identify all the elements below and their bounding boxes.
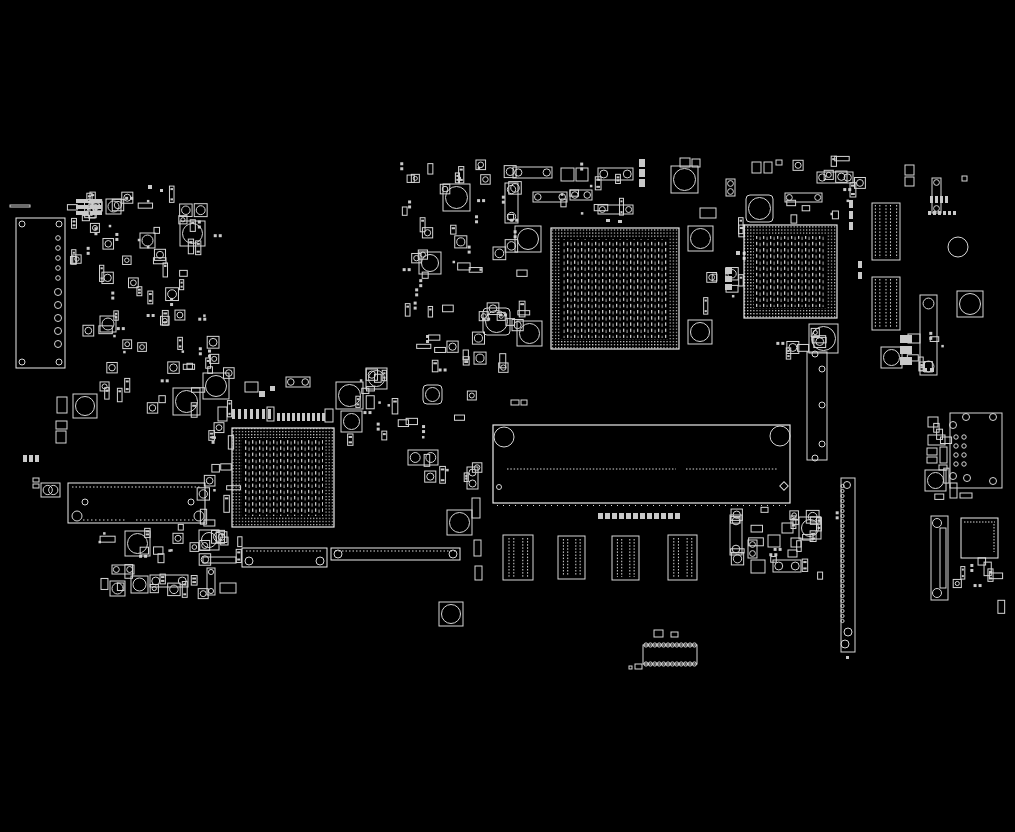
smd-part — [561, 168, 574, 181]
smd-dot — [203, 314, 206, 317]
smd-part-mark — [803, 561, 806, 563]
smd-pad-circle — [469, 393, 474, 398]
smd-part-mark — [181, 282, 183, 284]
smd-dot — [618, 220, 622, 223]
smd-pad-circle — [955, 581, 959, 585]
smd-dot — [830, 213, 833, 216]
ffc-connector — [558, 536, 585, 579]
smd-part-mark — [170, 188, 173, 190]
pin-dash — [605, 513, 610, 519]
screw-pad-circle — [691, 323, 710, 342]
h-connector-pin — [543, 169, 550, 176]
pin-dash — [639, 159, 645, 167]
edge-connector-right-hole — [844, 628, 852, 636]
h-connector — [773, 560, 801, 572]
smd-chip-pad — [419, 279, 422, 282]
smd-chip-pad — [836, 511, 839, 514]
smd-chip-pad — [199, 347, 202, 350]
smd-dot — [846, 656, 849, 659]
smd-pad-circle — [209, 338, 217, 346]
smd-part-mark — [920, 366, 923, 368]
vertical-slot-connector-slot — [940, 528, 946, 588]
daughterboard-pad-panel-pad — [954, 435, 958, 439]
smd-chip-pad — [774, 548, 777, 551]
edge-connector-right-serration — [841, 514, 844, 517]
smd-part-mark — [197, 243, 200, 245]
screw-pad-circle — [344, 414, 360, 430]
smd-part — [629, 666, 632, 669]
smd-part-mark — [406, 306, 409, 308]
daughterboard-pad-panel-hole — [990, 414, 997, 421]
smd-part — [443, 305, 454, 312]
pin-dash — [933, 211, 936, 215]
smd-pad-circle — [200, 591, 206, 597]
board-to-board-slot-index — [497, 485, 502, 490]
bottom-connector-hole — [316, 557, 324, 565]
smd-dot — [736, 251, 740, 255]
board-to-board-slot — [493, 425, 790, 503]
v-connector-pin — [208, 588, 213, 593]
edge-connector-right-serration — [841, 554, 844, 557]
smd-part — [905, 177, 914, 186]
pin-dash — [639, 179, 645, 187]
smd-chip-pad — [147, 314, 150, 317]
smd-chip-pad — [419, 284, 422, 287]
h-connector-pin — [786, 195, 792, 201]
battery-connector-hole — [72, 511, 82, 521]
smd-dot — [453, 261, 456, 264]
io-connector-left-pin — [56, 276, 61, 281]
smd-part — [472, 498, 480, 518]
smd-part-mark — [596, 186, 600, 188]
smd-pad-circle — [857, 180, 864, 187]
smd-pad — [175, 310, 185, 320]
smd-pad-circle — [140, 345, 145, 350]
pin-dash — [943, 211, 946, 215]
smd-chip-pad — [377, 428, 380, 431]
pin-dash — [849, 222, 853, 230]
h-connector-pin — [152, 577, 160, 585]
screw-pad-circle — [960, 294, 981, 315]
h-connector — [408, 450, 438, 465]
smd-part — [832, 211, 838, 219]
edge-connector-right-serration — [841, 594, 844, 597]
smd-dot — [113, 335, 116, 338]
edge-connector-right-serration — [841, 559, 844, 562]
smd-part-mark — [91, 194, 94, 196]
smd-part — [761, 507, 768, 512]
smd-part-mark — [228, 403, 230, 405]
smd-part — [671, 632, 678, 637]
smd-chip-pad — [779, 548, 782, 551]
pin-dash — [598, 513, 603, 519]
smd-chip-pad — [170, 298, 173, 301]
io-connector-left-pin — [55, 289, 62, 296]
smd-pad-circle — [182, 206, 190, 214]
smd-part — [220, 583, 236, 593]
smd-chip-pad — [475, 215, 478, 218]
io-connector-left-pin — [55, 341, 62, 348]
screw-pad — [671, 166, 698, 193]
screw-pad — [419, 252, 441, 274]
smd-dot — [479, 268, 482, 271]
smd-chip-pad — [403, 268, 406, 271]
smd-part-mark — [197, 251, 200, 253]
smd-pad-circle — [170, 585, 178, 593]
smd-pad-circle — [131, 280, 137, 286]
smd-chip-pad — [422, 430, 425, 433]
pin-dash — [29, 455, 33, 462]
io-connector-left-post — [19, 359, 25, 365]
screw-pad — [439, 602, 463, 626]
smd-pad-circle — [109, 364, 115, 370]
smd-dot — [446, 469, 449, 472]
smd-part — [435, 347, 446, 352]
smd-part — [635, 664, 642, 669]
dip-socket-connector — [643, 645, 697, 664]
smd-part-mark — [161, 580, 164, 582]
smd-part — [429, 335, 440, 340]
daughterboard-pad-panel-hole — [964, 475, 971, 482]
pin-dash — [938, 211, 941, 215]
smd-part — [180, 270, 188, 276]
smd-chip-pad — [408, 205, 411, 208]
pin-dash — [90, 211, 102, 215]
h-connector-pin — [535, 194, 542, 201]
smd-chip-pad — [774, 553, 777, 556]
v-connector-pin — [750, 551, 756, 557]
pin-dash — [76, 199, 88, 203]
pin-dash — [90, 205, 102, 209]
smd-pad — [214, 423, 224, 433]
smd-pad-circle — [483, 177, 488, 182]
smd-part-mark — [452, 227, 455, 229]
smd-dot — [941, 345, 944, 348]
smd-part — [739, 275, 744, 286]
smd-part-mark — [464, 359, 468, 361]
smd-part — [511, 400, 519, 405]
daughterboard-pad-panel — [950, 413, 1002, 488]
pin-dash — [935, 196, 938, 203]
smd-part — [190, 220, 195, 232]
pin-dash — [23, 455, 27, 462]
smd-chip-pad — [87, 247, 90, 250]
smd-pad-circle — [495, 249, 504, 258]
edge-connector-right-serration — [841, 579, 844, 582]
smd-part — [212, 464, 220, 472]
pin-dash — [668, 513, 673, 519]
smd-part — [422, 272, 428, 278]
smd-chip-pad — [929, 337, 932, 340]
smd-part-mark — [441, 468, 445, 470]
screw-pad-circle — [133, 578, 146, 591]
edge-connector-right-serration — [841, 619, 844, 622]
ffc-connector — [612, 536, 639, 580]
smd-part — [366, 396, 374, 409]
smd-part — [101, 578, 108, 589]
smd-chip-pad — [219, 234, 222, 237]
edge-connector-right-serration — [841, 534, 844, 537]
smd-pad — [138, 343, 147, 352]
pin-dash — [930, 196, 933, 203]
pin-dash — [612, 513, 617, 519]
battery-connector-post — [188, 499, 194, 505]
smd-part-mark — [705, 310, 707, 312]
pin-dash — [940, 196, 943, 203]
smd-pad — [467, 391, 476, 400]
smd-dot — [847, 200, 850, 203]
smd-pad-circle — [816, 338, 824, 346]
smd-part — [616, 174, 621, 183]
smd-chip-pad — [415, 288, 418, 291]
smd-part — [463, 350, 468, 360]
smd-pad-circle — [206, 477, 213, 484]
smd-part — [159, 396, 165, 403]
screw-pad-circle — [450, 513, 470, 533]
edge-connector-right-serration — [841, 574, 844, 577]
smd-dot — [378, 401, 381, 404]
v-connector-pin — [728, 189, 734, 195]
pin-dash — [244, 409, 247, 419]
h-connector-pin — [113, 567, 119, 573]
screw-pad — [131, 576, 148, 593]
smd-chip-pad — [208, 350, 211, 353]
smd-part — [238, 537, 242, 547]
smd-part-mark — [349, 441, 352, 443]
screw-pad-circle — [884, 350, 900, 366]
screw-pad — [443, 184, 470, 211]
smd-pad-circle — [175, 535, 181, 541]
smd-part-mark — [126, 388, 129, 390]
smd-part — [428, 306, 432, 317]
screw-pad — [515, 226, 541, 252]
pin-dash — [238, 409, 241, 419]
smd-dot — [270, 386, 275, 391]
smd-chip-pad — [212, 436, 215, 439]
battery-connector-post — [82, 499, 88, 505]
screw-pad — [957, 291, 983, 317]
smd-part-mark — [851, 193, 855, 195]
pin-dash — [858, 272, 862, 279]
smd-part — [818, 572, 823, 579]
smd-part-mark — [149, 293, 152, 295]
h-connector-pin — [302, 379, 309, 386]
pin-dash — [725, 276, 732, 282]
smd-part-mark — [429, 308, 431, 310]
screw-pad — [447, 510, 472, 535]
smd-part — [961, 567, 965, 580]
daughterboard-pad-panel-pad — [962, 453, 966, 457]
smd-part-mark — [920, 364, 923, 366]
smd-chip-pad — [415, 293, 418, 296]
mounting-ring — [948, 237, 968, 257]
io-connector-left-pin — [56, 246, 61, 251]
smd-part — [927, 457, 937, 463]
h-connector-pin — [626, 207, 632, 213]
pin-dash — [297, 413, 300, 421]
h-connector-pin — [815, 195, 821, 201]
v-connector-pin — [934, 180, 940, 186]
smd-chip-pad — [87, 252, 90, 255]
pin-dash — [626, 513, 631, 519]
smd-part — [700, 208, 716, 218]
v-connector-pin — [934, 206, 940, 212]
smd-pad-circle — [85, 327, 92, 334]
smd-part-mark — [228, 413, 230, 415]
screw-pad-circle — [183, 224, 203, 244]
smd-pad-circle — [104, 274, 111, 281]
screw-pad — [688, 320, 712, 344]
screw-pad-circle — [422, 255, 439, 272]
smd-pad-circle — [168, 290, 177, 299]
smd-part — [180, 280, 184, 290]
smd-part-mark — [460, 169, 463, 171]
smd-part-mark — [464, 361, 468, 363]
smd-pad — [440, 184, 450, 194]
smd-chip-pad — [199, 352, 202, 355]
vertical-slot-connector-hole — [933, 589, 942, 598]
edge-connector-right-serration — [841, 589, 844, 592]
smd-chip-pad — [400, 167, 403, 170]
screw-pad-circle — [128, 534, 148, 554]
h-connector-pin — [819, 174, 826, 181]
smd-part — [154, 547, 163, 554]
edge-connector-right-serration — [841, 544, 844, 547]
smd-chip-pad — [363, 411, 366, 414]
pin-dash — [250, 409, 253, 419]
vertical-slot-connector-hole — [933, 519, 942, 528]
smd-pad — [129, 278, 139, 288]
smd-part — [654, 630, 663, 637]
bottom-connector — [331, 548, 460, 560]
smd-part-mark — [357, 398, 359, 400]
smd-part — [325, 409, 333, 422]
smd-dot — [732, 295, 735, 298]
pin-dash — [232, 409, 235, 419]
edge-connector-right-serration — [841, 599, 844, 602]
screw-pad — [73, 394, 97, 418]
smd-chip-pad — [979, 584, 982, 587]
smd-chip-pad — [111, 297, 114, 300]
smd-dot — [259, 391, 265, 397]
smd-pad — [953, 579, 961, 587]
edge-connector-right-serration — [841, 604, 844, 607]
smd-part-mark — [126, 380, 129, 382]
smd-part-mark — [101, 277, 103, 279]
screw-pad-circle — [446, 187, 468, 209]
io-connector-left-post — [56, 221, 62, 227]
smd-part — [905, 165, 914, 175]
v-connector-pin — [728, 181, 734, 187]
smd-chip-pad — [439, 368, 442, 371]
edge-connector-right-serration — [841, 489, 844, 492]
pin-dash — [953, 211, 956, 215]
screw-pad-circle — [520, 324, 540, 344]
smd-pad — [412, 253, 421, 262]
smd-part — [802, 559, 807, 571]
smd-pad — [472, 463, 481, 472]
v-connector-pin — [750, 542, 756, 548]
h-connector-pin — [572, 192, 579, 199]
smd-pad-circle — [125, 342, 130, 347]
smd-pad-circle — [474, 465, 479, 470]
screw-pad-circle — [206, 376, 227, 397]
smd-part — [245, 382, 258, 392]
smd-chip-pad — [970, 569, 973, 572]
smd-part — [962, 176, 967, 181]
smd-pad-circle — [795, 162, 801, 168]
smd-part-mark — [163, 312, 167, 314]
smd-dot — [182, 350, 185, 353]
screw-pad-circle — [339, 385, 361, 407]
smd-pad-circle — [478, 162, 484, 168]
smd-pad — [411, 174, 419, 182]
pin-dash — [287, 413, 290, 421]
smd-pad — [481, 175, 490, 184]
smd-chip-pad — [477, 199, 480, 202]
pin-dash — [312, 413, 315, 421]
h-connector-pin — [623, 170, 631, 178]
smd-part — [56, 431, 66, 443]
smd-part — [158, 554, 164, 563]
smd-part-mark — [210, 433, 214, 435]
smd-chip-pad — [94, 232, 97, 235]
smd-pad — [476, 160, 486, 170]
smd-part — [33, 478, 39, 482]
pin-dash — [268, 409, 271, 419]
pin-dash — [35, 455, 39, 462]
smd-pad-circle — [170, 364, 177, 371]
smd-chip-pad — [502, 201, 505, 204]
smd-part-mark — [433, 362, 437, 364]
smd-part-mark — [962, 575, 964, 577]
smd-part-mark — [183, 593, 186, 595]
smd-part — [458, 263, 470, 270]
pin-dash — [948, 211, 951, 215]
smd-part-mark — [179, 345, 182, 347]
smd-part — [432, 360, 438, 372]
smd-part — [928, 417, 938, 427]
daughterboard-pad-panel-pad — [962, 444, 966, 448]
smd-part — [236, 549, 241, 562]
v-connector — [726, 179, 735, 196]
pin-dash — [322, 413, 325, 421]
screw-pad-circle — [142, 235, 153, 246]
smd-part-mark — [832, 158, 835, 160]
smd-dot — [360, 379, 363, 382]
smd-part-mark — [620, 211, 622, 213]
smd-part-mark — [101, 267, 103, 269]
edge-connector-right-serration — [841, 499, 844, 502]
bga-chip-large-balls — [562, 239, 668, 338]
smd-part-mark — [705, 300, 707, 302]
io-connector-left-pin — [56, 266, 61, 271]
pin-dash — [282, 413, 285, 421]
smd-pad-circle — [199, 490, 207, 498]
smd-dot — [459, 177, 462, 180]
board-to-board-slot-hole — [770, 426, 790, 446]
smd-part — [221, 464, 232, 470]
h-connector-pin — [600, 170, 608, 178]
pin-dash — [849, 211, 853, 219]
smd-chip-pad — [152, 314, 155, 317]
screw-pad-circle — [812, 327, 836, 351]
daughterboard-pad-panel-hole — [950, 473, 957, 480]
pin-dash — [640, 513, 645, 519]
smd-part-mark — [161, 576, 164, 578]
smd-pad-circle — [192, 545, 197, 550]
smd-part-mark — [73, 252, 75, 254]
